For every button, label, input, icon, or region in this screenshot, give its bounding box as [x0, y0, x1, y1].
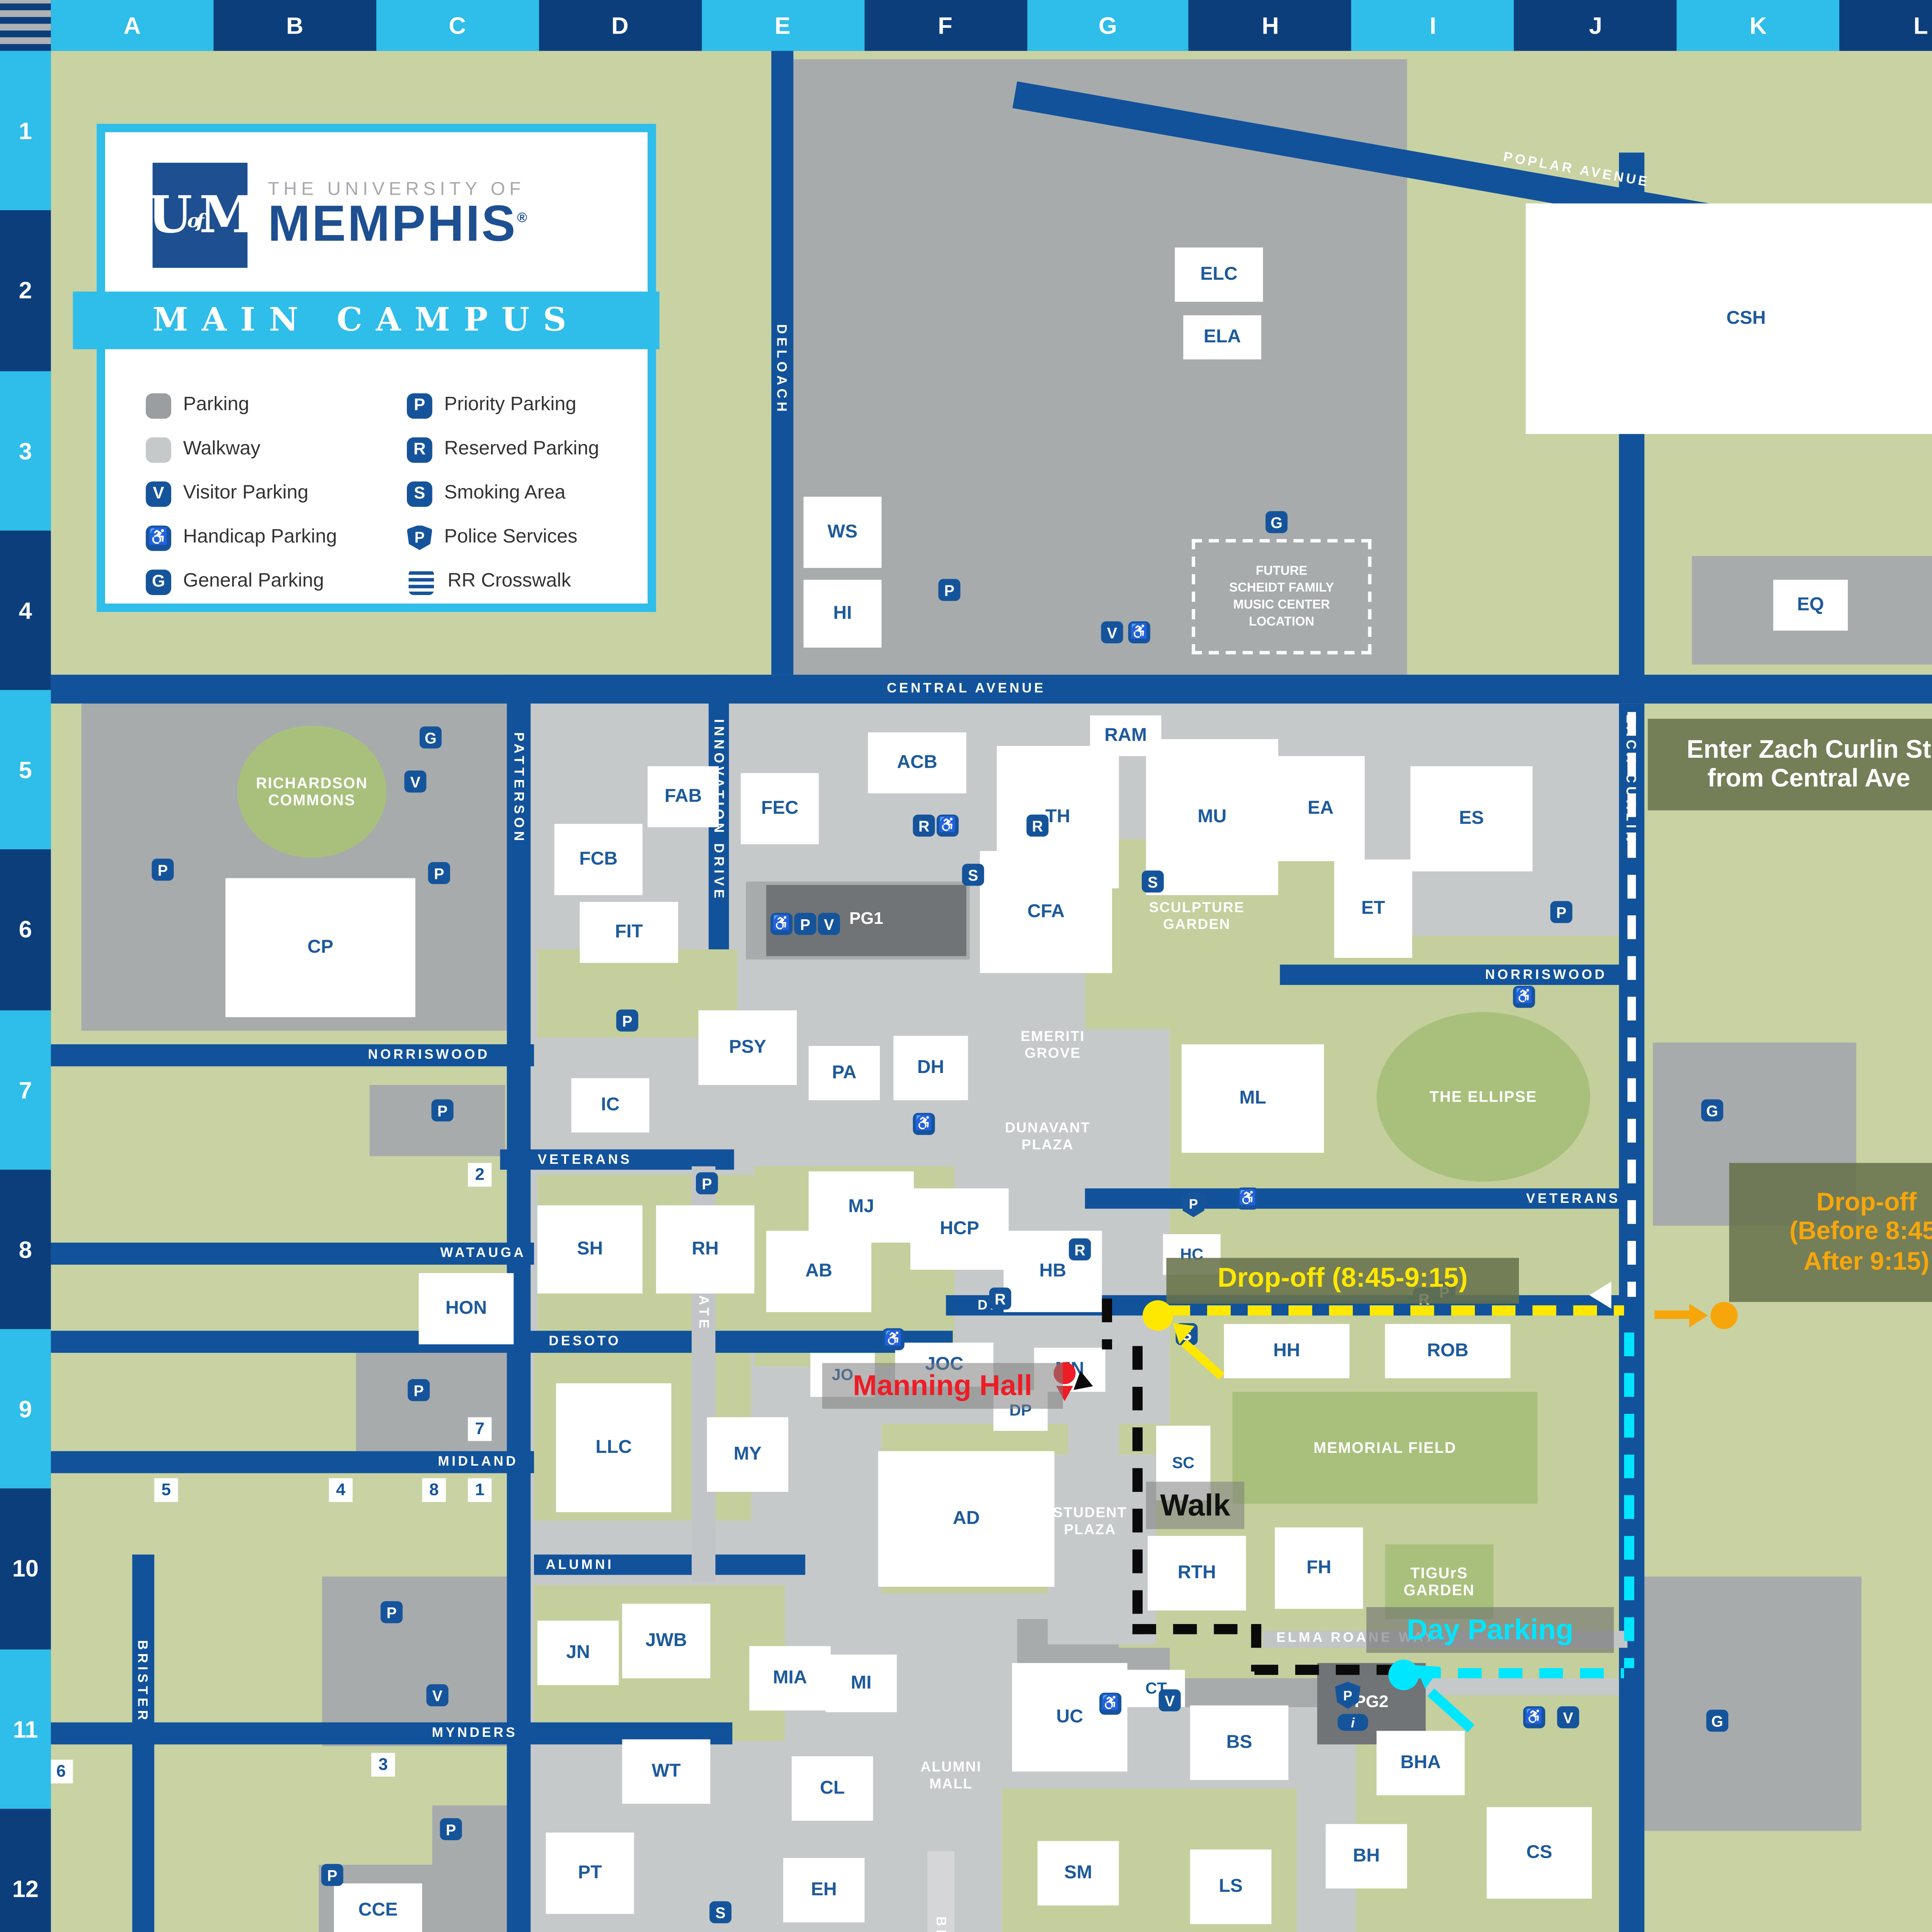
grid-row-3-left: 3: [0, 371, 51, 531]
walkway-legend-icon: [146, 437, 171, 462]
priority-parking-icon: P: [432, 1099, 454, 1121]
rr-legend-icon: [407, 567, 436, 596]
legend-item-label: Handicap Parking: [183, 527, 337, 548]
grid-col-I-top: I: [1352, 0, 1514, 51]
building-cfa: CFA: [980, 851, 1112, 973]
lot-number-4: 4: [329, 1478, 352, 1502]
police-legend-icon: P: [407, 525, 432, 550]
building-sh: SH: [537, 1205, 643, 1293]
building-ws: WS: [804, 497, 882, 568]
parking-lot: [1641, 1577, 1861, 1831]
grid-row-11-left: 11: [0, 1649, 51, 1809]
building-jwb: JWB: [622, 1604, 710, 1678]
building-fit: FIT: [580, 902, 678, 963]
map-viewport: RICHARDSON COMMONSTHE ELLIPSEMEMORIAL FI…: [0, 0, 1932, 1932]
university-wordmark: THE UNIVERSITY OF MEMPHIS®: [268, 180, 529, 251]
street-label-veterans: VETERANS: [538, 1152, 632, 1167]
legend-item-reserved-parking: RReserved Parking: [407, 427, 678, 471]
lot-number-7: 7: [468, 1417, 492, 1441]
building-ela: ELA: [1183, 315, 1261, 359]
label-sculpture: SCULPTURE GARDEN: [1149, 898, 1245, 932]
legend-item-rr-crosswalk: RR Crosswalk: [407, 560, 678, 604]
annotation-day-parking: Day Parking: [1366, 1607, 1614, 1653]
building-cp: CP: [226, 878, 415, 1017]
building-mia: MIA: [749, 1646, 831, 1711]
visitor-parking-icon: V: [1557, 1706, 1579, 1728]
annotation-walk: Walk: [1146, 1482, 1244, 1529]
visitor-parking-icon: V: [426, 1684, 448, 1706]
visitor-parking-icon: V: [1159, 1689, 1181, 1711]
parking-legend-icon: [146, 393, 171, 418]
parking-info-icon: i: [1338, 1714, 1368, 1731]
reserved-legend-icon: R: [407, 437, 432, 462]
building-cs: CS: [1487, 1807, 1592, 1899]
area-future: FUTURE SCHEIDT FAMILY MUSIC CENTER LOCAT…: [1192, 539, 1371, 654]
university-big-text: MEMPHIS®: [268, 200, 529, 251]
reserved-parking-icon: R: [989, 1287, 1011, 1310]
building-mi: MI: [826, 1655, 897, 1712]
parking-lot: [356, 1339, 517, 1458]
grid-row-10-left: 10: [0, 1489, 51, 1649]
building-jn: JN: [537, 1621, 619, 1685]
smoking-area-icon: S: [962, 864, 984, 886]
map-title-banner: MAIN CAMPUS: [73, 292, 660, 349]
street-label-desoto: DESOTO: [549, 1333, 621, 1349]
lot-number-2: 2: [468, 1163, 492, 1187]
arrow-orange-tail: [1655, 1310, 1699, 1319]
building-hh: HH: [1224, 1324, 1350, 1378]
priority-legend-icon: P: [407, 393, 432, 418]
legend-item-label: Priority Parking: [444, 395, 576, 415]
building-fcb: FCB: [554, 824, 643, 895]
uofm-logo-mark: UofM: [153, 163, 248, 268]
route-walk-dashed: [1102, 1299, 1112, 1350]
street-label-midland: MIDLAND: [438, 1454, 518, 1469]
visitor-parking-icon: V: [404, 770, 426, 793]
legend-item-label: Police Services: [444, 527, 577, 548]
street-label-norriswood: NORRISWOOD: [1485, 967, 1607, 982]
street-label-bridge: BRIDGE: [933, 1917, 948, 1932]
street-label-norriswood: NORRISWOOD: [368, 1047, 490, 1062]
building-psy: PSY: [699, 1010, 797, 1085]
building-cl: CL: [792, 1756, 873, 1821]
handicap-parking-icon: ♿: [1099, 1693, 1121, 1715]
reserved-parking-icon: R: [913, 815, 935, 837]
building-ab: AB: [766, 1231, 871, 1312]
building-fec: FEC: [741, 773, 819, 844]
building-fab: FAB: [648, 766, 719, 827]
route-walk-dashed: [1133, 1346, 1143, 1634]
grid-col-H-top: H: [1189, 0, 1352, 51]
building-elc: ELC: [1175, 248, 1263, 302]
arrow-white: [1589, 1282, 1611, 1309]
handicap-parking-icon: ♿: [937, 815, 959, 837]
grid-col-C-top: C: [376, 0, 539, 51]
handicap-parking-icon: ♿: [883, 1328, 905, 1350]
smoking-area-icon: S: [1142, 871, 1164, 893]
campus-map: RICHARDSON COMMONSTHE ELLIPSEMEMORIAL FI…: [0, 0, 1932, 1932]
legend-item-general-parking: GGeneral Parking: [146, 560, 400, 604]
route-yellow-dashed: [1166, 1305, 1624, 1315]
building-bha: BHA: [1376, 1731, 1464, 1795]
building-acb: ACB: [868, 732, 966, 793]
grid-row-8-left: 8: [0, 1169, 51, 1329]
lot-number-1: 1: [468, 1478, 492, 1502]
priority-parking-icon: P: [616, 1010, 638, 1032]
grid-col-L-top: L: [1840, 0, 1932, 51]
visitor-parking-icon: V: [818, 913, 840, 935]
priority-parking-icon: P: [428, 862, 450, 884]
route-walk-dashed: [1255, 1665, 1397, 1675]
rr-crosswalk-corner: [0, 0, 51, 51]
building-sm: SM: [1037, 1841, 1119, 1906]
reserved-parking-icon: R: [1069, 1238, 1091, 1260]
legend-item-smoking-area: SSmoking Area: [407, 471, 678, 515]
building-hi: HI: [804, 580, 882, 647]
grid-col-F-top: F: [864, 0, 1027, 51]
building-pa: PA: [809, 1046, 880, 1100]
building-cce: CCE: [334, 1883, 422, 1932]
grid-row-12-left: 12: [0, 1808, 51, 1932]
grid-row-5-left: 5: [0, 690, 51, 850]
street-label-patterson: PATTERSON: [511, 732, 526, 844]
street-label-innovation-drive: INNOVATION DRIVE: [711, 719, 726, 902]
legend-item-label: Parking: [183, 395, 249, 415]
parking-lot: [322, 1577, 509, 1746]
legend-item-label: General Parking: [183, 571, 324, 592]
handicap-parking-icon: ♿: [1237, 1187, 1259, 1209]
route-cyan-dashed: [1624, 1332, 1634, 1668]
priority-parking-icon: P: [321, 1864, 343, 1886]
building-csh: CSH: [1526, 203, 1932, 434]
street-label-veterans: VETERANS: [1526, 1191, 1621, 1206]
route-dot: [1711, 1302, 1738, 1329]
street-label-desoto: DESOTO: [978, 1298, 1050, 1313]
general-parking-icon: G: [1701, 1099, 1723, 1121]
building-pt: PT: [546, 1833, 634, 1914]
building-mu: MU: [1146, 739, 1278, 895]
annotation-dropoff-1: Drop-off (8:45-9:15): [1166, 1258, 1519, 1303]
grid-row-4-left: 4: [0, 530, 51, 690]
label-alumni: ALUMNI MALL: [920, 1758, 981, 1792]
route-cyan-dashed: [1417, 1668, 1624, 1678]
building-ad: AD: [878, 1451, 1054, 1587]
legend-item-handicap-parking: ♿Handicap Parking: [146, 515, 400, 560]
grid-col-J-top: J: [1514, 0, 1677, 51]
priority-parking-icon: P: [696, 1172, 718, 1194]
route-dot: [1143, 1300, 1173, 1331]
legend-item-parking: Parking: [146, 383, 400, 427]
handicap-parking-icon: ♿: [770, 913, 793, 935]
street-label-brister: BRISTER: [135, 1640, 150, 1723]
building-eq: EQ: [1773, 580, 1848, 631]
priority-parking-icon: P: [938, 579, 960, 601]
priority-parking-icon: P: [794, 913, 816, 935]
grid-row-1-left: 1: [0, 51, 51, 211]
priority-parking-icon: P: [440, 1818, 462, 1840]
building-hon: HON: [419, 1273, 514, 1344]
general-parking-icon: G: [1265, 511, 1287, 533]
handicap-parking-icon: ♿: [1128, 621, 1150, 643]
grid-row-7-left: 7: [0, 1010, 51, 1170]
legend-item-walkway: Walkway: [146, 427, 400, 471]
building-uc: UC: [1012, 1663, 1127, 1772]
building-ic: IC: [571, 1078, 650, 1132]
grid-row-6-left: 6: [0, 850, 51, 1010]
handicap-parking-icon: ♿: [913, 1113, 935, 1135]
priority-parking-icon: P: [152, 859, 174, 881]
legend-item-label: RR Crosswalk: [447, 571, 571, 592]
building-eh: EH: [783, 1858, 865, 1922]
grid-col-B-top: B: [213, 0, 376, 51]
route-walk-dashed: [1133, 1624, 1261, 1634]
priority-parking-icon: P: [408, 1379, 430, 1401]
label-student: STUDENT PLAZA: [1053, 1504, 1127, 1538]
building-my: MY: [707, 1417, 789, 1492]
grid-row-2-left: 2: [0, 211, 51, 371]
area-memorial-field: MEMORIAL FIELD: [1233, 1392, 1538, 1504]
building-wt: WT: [622, 1739, 710, 1804]
building-rob: ROB: [1385, 1324, 1510, 1378]
legend-item-label: Smoking Area: [444, 483, 565, 503]
priority-parking-icon: P: [1550, 901, 1572, 923]
grid-row-9-left: 9: [0, 1329, 51, 1489]
label-dunavant: DUNAVANT PLAZA: [1005, 1119, 1090, 1153]
legend-item-label: Walkway: [183, 439, 260, 459]
street-label-alumni: ALUMNI: [546, 1557, 614, 1572]
lot-number-8: 8: [422, 1478, 446, 1502]
visitor-parking-icon: V: [1101, 621, 1123, 643]
general-parking-icon: G: [420, 726, 442, 748]
smoking-legend-icon: S: [407, 481, 432, 506]
visitor-legend-icon: V: [146, 481, 171, 506]
priority-parking-icon: P: [381, 1601, 403, 1623]
legend-item-label: Reserved Parking: [444, 439, 599, 459]
handicap-parking-icon: ♿: [1523, 1706, 1545, 1728]
grid-col-A-top: A: [51, 0, 214, 51]
building-rth: RTH: [1148, 1536, 1246, 1611]
street-label-deloach: DELOACH: [774, 324, 789, 415]
handicap-parking-icon: ♿: [1513, 986, 1535, 1008]
building-fh: FH: [1275, 1527, 1363, 1609]
building-dh: DH: [893, 1036, 968, 1100]
building-et: ET: [1334, 859, 1412, 957]
building-hcp: HCP: [910, 1188, 1009, 1270]
street-label-mynders: MYNDERS: [432, 1725, 518, 1740]
grid-col-G-top: G: [1027, 0, 1189, 51]
building-ea: EA: [1277, 756, 1365, 861]
reserved-parking-icon: R: [1027, 815, 1049, 837]
legend-item-priority-parking: PPriority Parking: [407, 383, 678, 427]
lot-number-3: 3: [371, 1753, 395, 1776]
annotation-manning-hall: Manning Hall: [822, 1363, 1063, 1408]
annotation-enter-zach: Enter Zach Curlin St from Central Ave: [1648, 719, 1932, 810]
legend-item-label: Visitor Parking: [183, 483, 308, 503]
street-label-watauga: WATAUGA: [440, 1245, 526, 1260]
street-label-central-avenue: CENTRAL AVENUE: [887, 681, 1046, 696]
lot-number-5: 5: [154, 1478, 178, 1502]
legend-items: ParkingWalkwayVVisitor Parking♿Handicap …: [146, 383, 637, 604]
building-ml: ML: [1182, 1044, 1324, 1153]
general-parking-icon: G: [1706, 1710, 1728, 1732]
route-white-dashed: [1628, 712, 1636, 1297]
handicap-legend-icon: ♿: [146, 525, 171, 550]
building-llc: LLC: [556, 1383, 671, 1512]
area-the-ellipse: THE ELLIPSE: [1376, 1012, 1590, 1182]
building-ls: LS: [1190, 1850, 1272, 1924]
smoking-area-icon: S: [709, 1901, 731, 1923]
building-bs: BS: [1190, 1706, 1288, 1780]
legend-panel: UofM THE UNIVERSITY OF MEMPHIS® ParkingW…: [97, 124, 656, 612]
street: [132, 1554, 154, 1932]
area-richardson: RICHARDSON COMMONS: [237, 726, 386, 858]
legend-item-visitor-parking: VVisitor Parking: [146, 471, 400, 515]
university-logo: UofM THE UNIVERSITY OF MEMPHIS®: [153, 163, 529, 268]
grid-col-E-top: E: [701, 0, 864, 51]
building-bh: BH: [1326, 1824, 1407, 1889]
annotation-dropoff-2: Drop-off (Before 8:45/ After 9:15): [1729, 1163, 1932, 1302]
street-label-state: STATE: [696, 1272, 711, 1332]
grid-col-K-top: K: [1677, 0, 1840, 51]
grid-col-D-top: D: [539, 0, 701, 51]
lot-number-6: 6: [49, 1760, 73, 1783]
label-emeriti: EMERITI GROVE: [1020, 1027, 1085, 1061]
building-es: ES: [1410, 766, 1532, 871]
legend-item-police-services: PPolice Services: [407, 515, 678, 560]
general-legend-icon: G: [146, 569, 171, 594]
